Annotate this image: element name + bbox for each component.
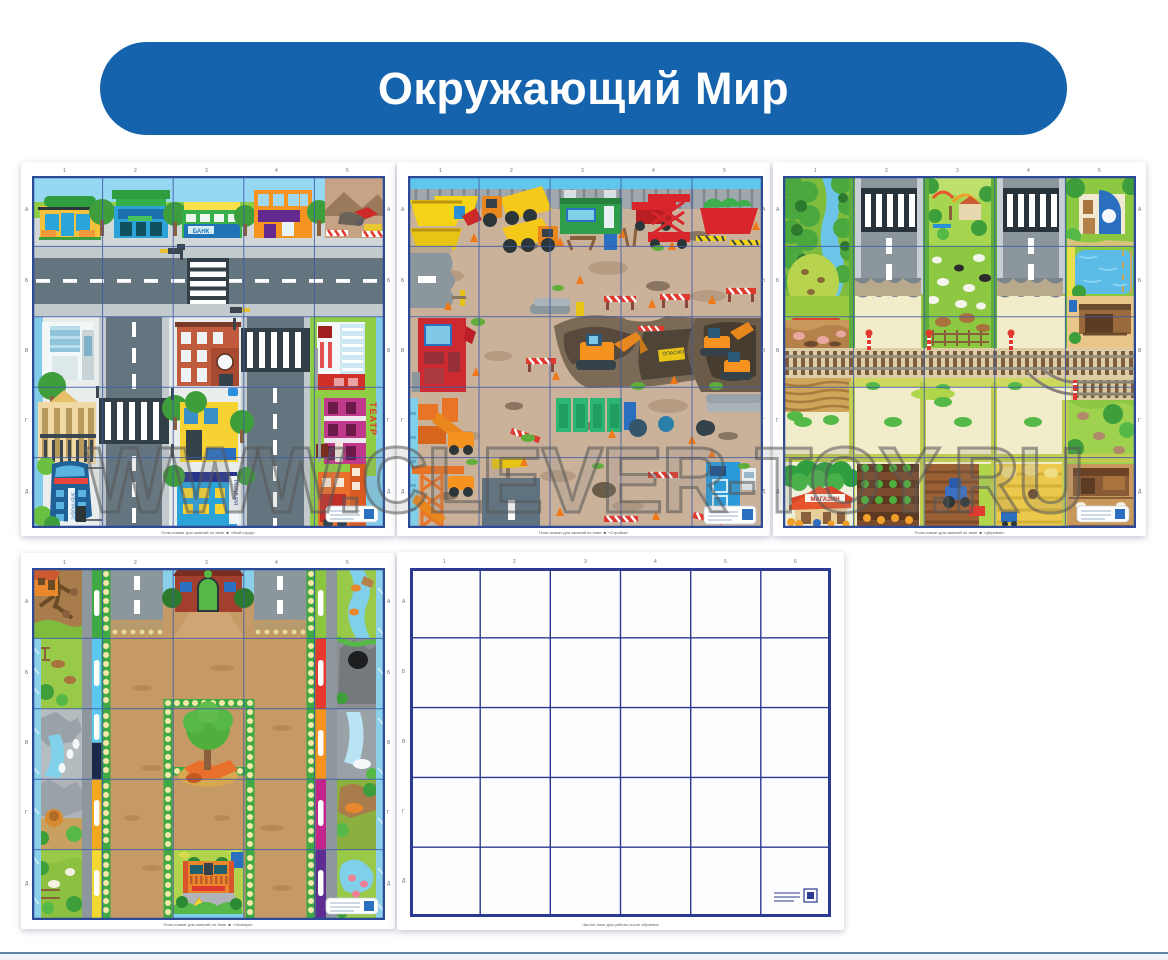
svg-text:ПОЛИЦИЯ: ПОЛИЦИЯ [232, 480, 238, 506]
svg-text:БАНК: БАНК [193, 229, 210, 235]
svg-text:ЭЛЕКТРОБУС: ЭЛЕКТРОБУС [71, 492, 76, 520]
svg-text:ТЕАТР: ТЕАТР [368, 402, 378, 436]
svg-text:МАГАЗИН: МАГАЗИН [810, 497, 839, 503]
